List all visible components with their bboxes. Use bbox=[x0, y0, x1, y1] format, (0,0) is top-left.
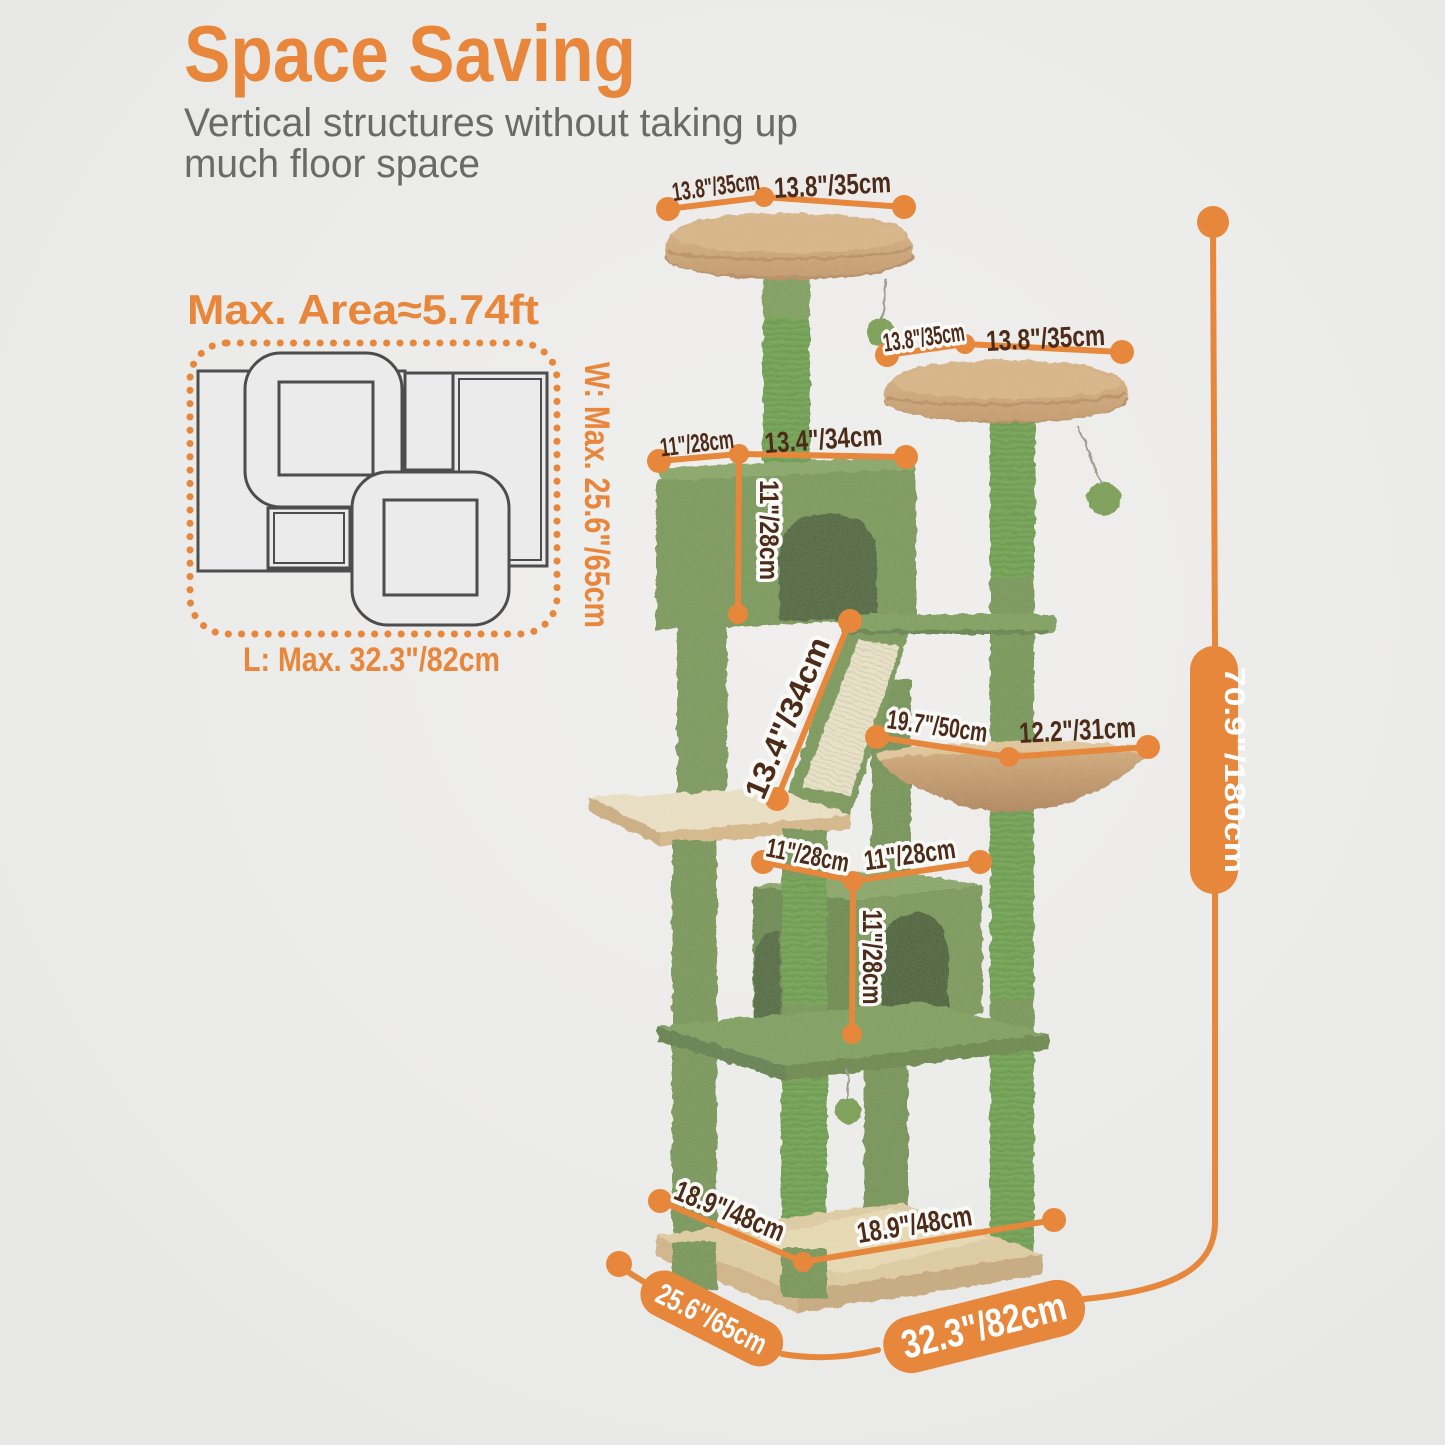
svg-text:W: Max. 25.6"/65cm: W: Max. 25.6"/65cm bbox=[577, 362, 616, 628]
svg-text:Space Saving: Space Saving bbox=[184, 9, 636, 98]
svg-text:much floor space: much floor space bbox=[184, 142, 480, 186]
svg-text:Vertical structures without ta: Vertical structures without taking up bbox=[184, 101, 798, 145]
svg-text:12.2"/31cm: 12.2"/31cm bbox=[1018, 712, 1137, 750]
svg-text:13.8"/35cm: 13.8"/35cm bbox=[773, 167, 892, 205]
svg-text:Max. Area≈5.74ft: Max. Area≈5.74ft bbox=[187, 286, 539, 333]
svg-text:L: Max. 32.3"/82cm: L: Max. 32.3"/82cm bbox=[243, 641, 500, 679]
svg-text:11"/28cm: 11"/28cm bbox=[857, 910, 888, 1005]
svg-text:70.9"/180cm: 70.9"/180cm bbox=[1218, 667, 1250, 873]
svg-text:11"/28cm: 11"/28cm bbox=[754, 480, 784, 580]
svg-text:13.8"/35cm: 13.8"/35cm bbox=[985, 320, 1106, 358]
